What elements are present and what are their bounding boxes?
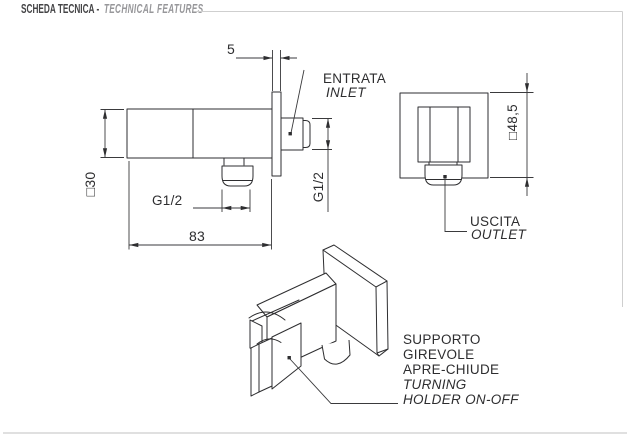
dim-value-83: 83 xyxy=(189,228,205,244)
wall-plate-side xyxy=(272,92,281,176)
dim-value-g12-outlet: G1/2 xyxy=(152,193,182,208)
holder-label-line5: HOLDER ON-OFF xyxy=(403,392,519,407)
valve-body-front xyxy=(418,107,470,162)
dim-value-48-5: □48,5 xyxy=(505,104,520,140)
dimension-plate-offset: 5 xyxy=(227,41,297,91)
holder-label-line3: APRE-CHIUDE xyxy=(403,362,499,377)
dimension-inlet-thread: G1/2 xyxy=(311,119,332,213)
holder-label-line1: SUPPORTO xyxy=(403,332,481,347)
holder-label-line4: TURNING xyxy=(403,377,467,392)
outlet-nozzle-side xyxy=(222,158,253,186)
inlet-label-english: INLET xyxy=(326,85,367,100)
valve-body-side xyxy=(127,109,272,158)
dimension-plate-size: □48,5 xyxy=(490,73,534,196)
outlet-nozzle-front xyxy=(425,162,462,185)
inlet-label-italian: ENTRATA xyxy=(323,71,386,86)
technical-drawing-canvas: 5 □30 83 G1/2 xyxy=(0,0,640,447)
dimension-body-section: □30 xyxy=(82,110,124,197)
leader-dot xyxy=(288,356,291,359)
spec-sheet-page: { "header": { "title_it": "SCHEDA TECNIC… xyxy=(0,0,640,447)
leader-dot xyxy=(289,132,292,135)
side-view-drawing: 5 □30 83 G1/2 xyxy=(82,41,386,250)
dimension-outlet-thread: G1/2 xyxy=(152,190,250,213)
dim-value-5: 5 xyxy=(227,41,235,57)
page-frame xyxy=(3,12,627,434)
isometric-view-drawing: SUPPORTO GIREVOLE APRE-CHIUDE TURNING HO… xyxy=(249,245,519,407)
outlet-label-english: OUTLET xyxy=(471,227,528,242)
inlet-connector xyxy=(281,118,310,150)
dim-value-g12-inlet: G1/2 xyxy=(311,172,326,202)
leader-dot xyxy=(443,175,446,178)
holder-label-line2: GIREVOLE xyxy=(403,347,474,362)
dim-value-30: □30 xyxy=(82,172,98,197)
front-view-drawing: □48,5 USCITA OUTLET xyxy=(400,73,534,242)
